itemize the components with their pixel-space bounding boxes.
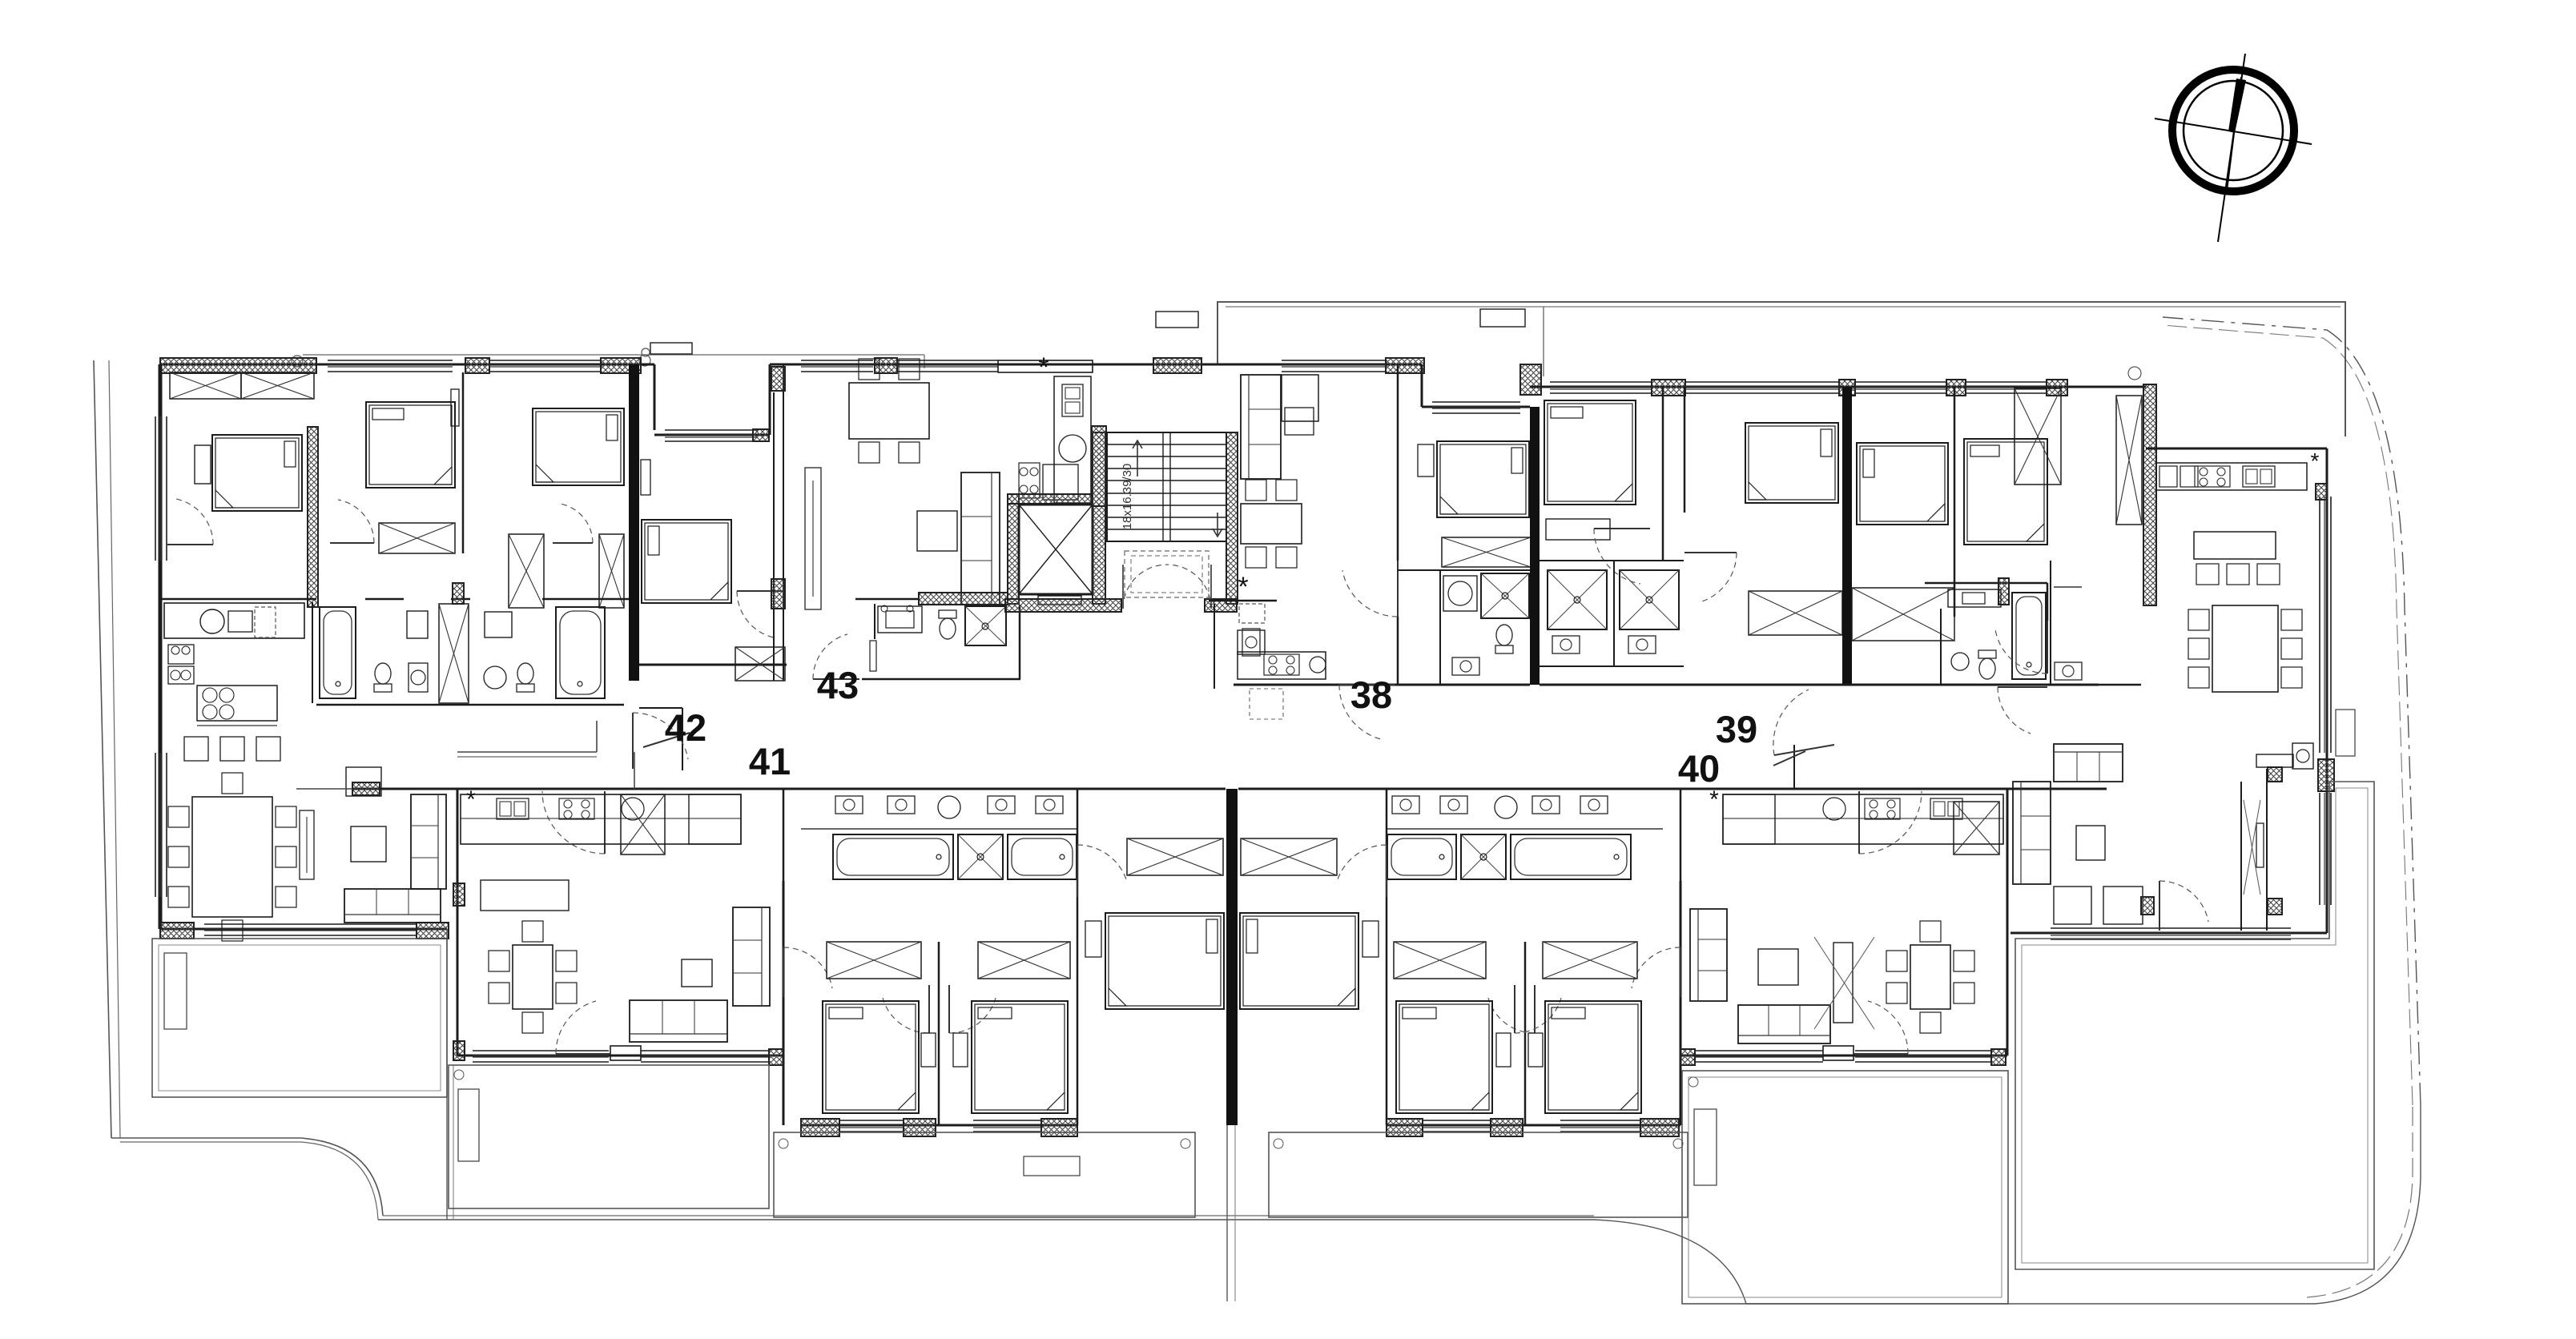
svg-text:39: 39 <box>1716 708 1757 750</box>
svg-text:*: * <box>2311 448 2320 473</box>
svg-text:*: * <box>466 786 476 813</box>
svg-text:*: * <box>1709 786 1719 813</box>
svg-text:43: 43 <box>817 664 859 706</box>
svg-text:*: * <box>1238 572 1248 602</box>
svg-text:42: 42 <box>665 706 706 749</box>
svg-text:40: 40 <box>1678 747 1720 790</box>
svg-text:41: 41 <box>749 740 791 782</box>
svg-text:18x16.39/30: 18x16.39/30 <box>1121 464 1134 530</box>
svg-text:38: 38 <box>1350 674 1392 716</box>
svg-text:*: * <box>1038 352 1049 383</box>
